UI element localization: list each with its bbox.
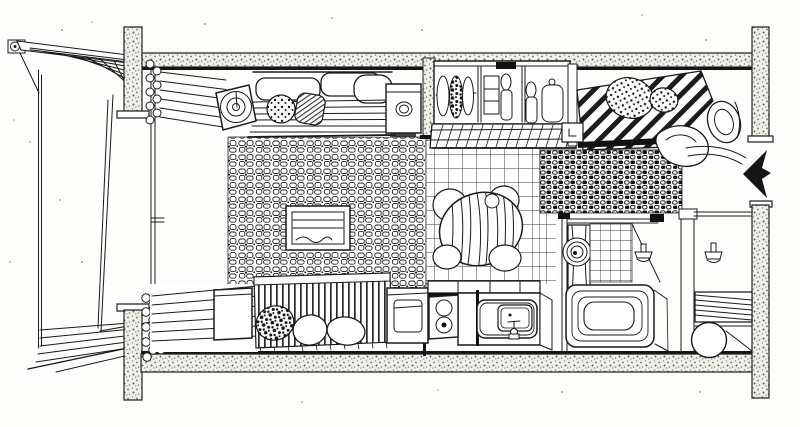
bathtub	[566, 285, 668, 351]
left-column-bottom	[124, 310, 142, 400]
hanger-hook	[501, 74, 511, 90]
tile-floor-strip	[540, 213, 556, 284]
hanging-garment	[501, 90, 512, 120]
counter-side	[540, 293, 552, 350]
closet-shelf-stack	[484, 76, 499, 114]
wall-cap-dark	[558, 213, 570, 219]
right-column-top	[752, 27, 769, 139]
wardrobe-closet	[430, 61, 576, 148]
kitchen-sink	[477, 300, 537, 339]
right-wall-lower	[752, 205, 769, 398]
wall-tiles	[590, 224, 632, 282]
hatched-cushion	[294, 92, 327, 126]
round-stool	[692, 323, 727, 358]
day-bed	[150, 273, 392, 352]
wardrobe-base	[430, 124, 576, 148]
countertop	[428, 281, 540, 293]
hanging-garment-dark	[450, 76, 463, 118]
bottom-wall	[141, 354, 755, 372]
cube-stool	[214, 288, 252, 340]
left-column-top	[124, 27, 142, 112]
drain	[509, 314, 512, 317]
bedroom-rug	[540, 150, 682, 213]
dining-chair	[433, 245, 461, 269]
door-jamb-cap	[748, 136, 773, 142]
nightstand-clock	[562, 123, 583, 142]
tv-low-table	[286, 206, 350, 250]
hanging-garment	[437, 76, 449, 116]
dotted-cushion	[267, 95, 295, 123]
hanging-garment	[526, 97, 537, 123]
column-cap	[117, 111, 149, 118]
sketch-page	[0, 0, 800, 427]
wall-cap-dark	[650, 214, 664, 222]
side-cabinet-with-bowl	[386, 84, 421, 137]
dining-set	[430, 182, 532, 276]
under-counter-appliance	[387, 288, 428, 343]
slatted-bench	[695, 292, 752, 326]
hanging-shirt	[542, 85, 563, 122]
two-burner-stove	[429, 295, 458, 339]
wardrobe-shadow	[496, 62, 516, 69]
hanger-hook	[549, 79, 555, 85]
dining-chair	[489, 245, 521, 271]
partition-cap	[679, 209, 697, 219]
hanger-hook	[526, 82, 536, 98]
hanging-garment	[463, 77, 474, 115]
floor-plan-drawing	[0, 0, 800, 427]
table-bowl	[485, 194, 499, 208]
spiral-lamp-end-table	[216, 85, 256, 130]
